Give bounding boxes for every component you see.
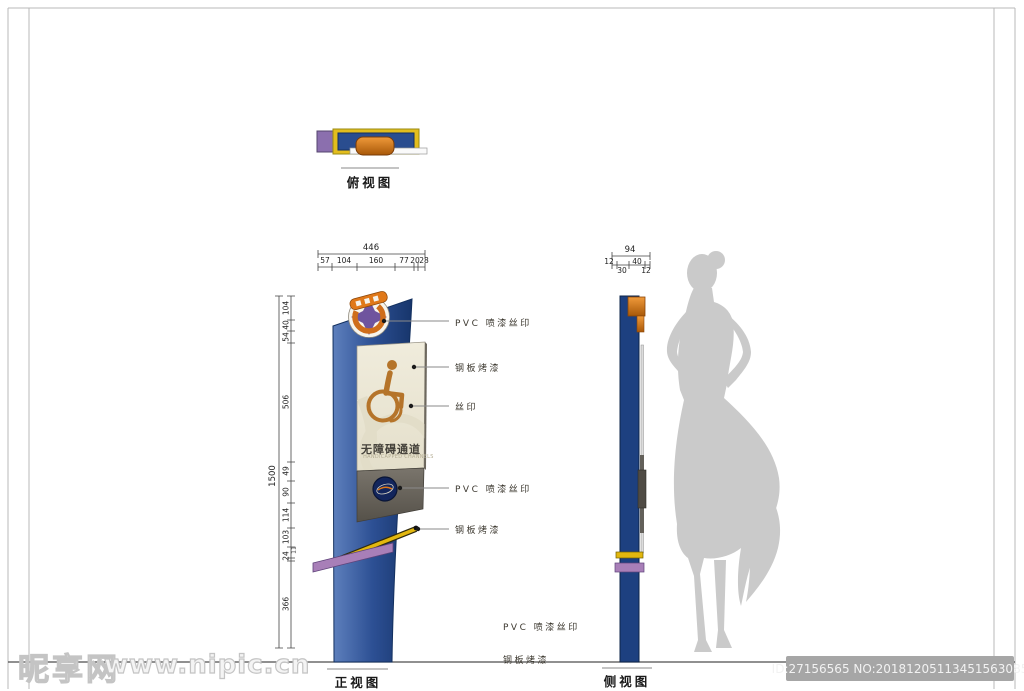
dim-front-width-seg: 77 [399, 256, 409, 265]
front-view-drawing [313, 290, 432, 669]
dim-front-width-seg: 160 [369, 256, 383, 265]
dim-front-height-seg: 54 [282, 332, 291, 342]
annotation-strip-material: 钢板烤漆 [455, 523, 501, 536]
top-view-drawing [317, 129, 427, 168]
dim-side-width-seg: 40 [632, 257, 642, 266]
annotation-bottom-pvc: PVC 喷漆丝印 [503, 620, 580, 633]
annotation-badge-material: PVC 喷漆丝印 [455, 482, 532, 495]
dim-front-height-seg: 49 [282, 466, 291, 476]
side-view-drawing [602, 296, 652, 668]
dim-front-height-seg: 104 [282, 301, 291, 315]
brand-badge-icon [373, 477, 397, 501]
side-view-label: 侧视图 [604, 671, 651, 690]
dim-front-height-seg: 90 [282, 487, 291, 497]
image-id-badge: ID:27156565 NO:20181205113451563085 [786, 656, 1014, 681]
dim-front-height-seg: 24 [282, 551, 291, 561]
dim-front-width-seg: 104 [337, 256, 351, 265]
page-frame [8, 8, 1015, 689]
side-post [620, 296, 639, 662]
annotation-bottom-steel: 钢板烤漆 [503, 653, 549, 666]
annotation-panel-material: 钢板烤漆 [455, 361, 501, 374]
dim-front-width-seg: 57 [320, 256, 330, 265]
sign-subtitle: HANDICAPPED CHANNELS [363, 454, 419, 460]
dim-side-width-seg: 12 [604, 257, 614, 266]
front-view-label: 正视图 [335, 672, 382, 691]
dim-side-width-total: 94 [625, 245, 636, 255]
dim-front-height-seg: 114 [282, 508, 291, 522]
dim-front-height-seg: 506 [282, 395, 291, 409]
signage-drawing [0, 0, 1024, 689]
dim-front-height-seg: 11 [291, 546, 298, 554]
dim-front-width-seg: 28 [419, 256, 429, 265]
top-view-label: 俯视图 [347, 172, 394, 191]
dim-side-width-seg: 30 [617, 266, 627, 275]
dim-front-height-seg: 40 [282, 320, 291, 330]
annotation-print: 丝印 [455, 400, 478, 413]
image-id-text: ID:27156565 NO:20181205113451563085 [772, 662, 1024, 676]
dim-side-width-seg: 12 [641, 266, 651, 275]
female-silhouette [667, 251, 780, 652]
dim-front-height-seg: 103 [282, 530, 291, 544]
dim-front-height-seg: 366 [282, 597, 291, 611]
watermark-url: www.nipic.cn [104, 650, 310, 680]
dim-front-height-total: 1500 [268, 465, 278, 487]
dim-front-width-total: 446 [363, 243, 379, 253]
annotation-logo-material: PVC 喷漆丝印 [455, 316, 532, 329]
brand-logo-icon [349, 290, 390, 337]
